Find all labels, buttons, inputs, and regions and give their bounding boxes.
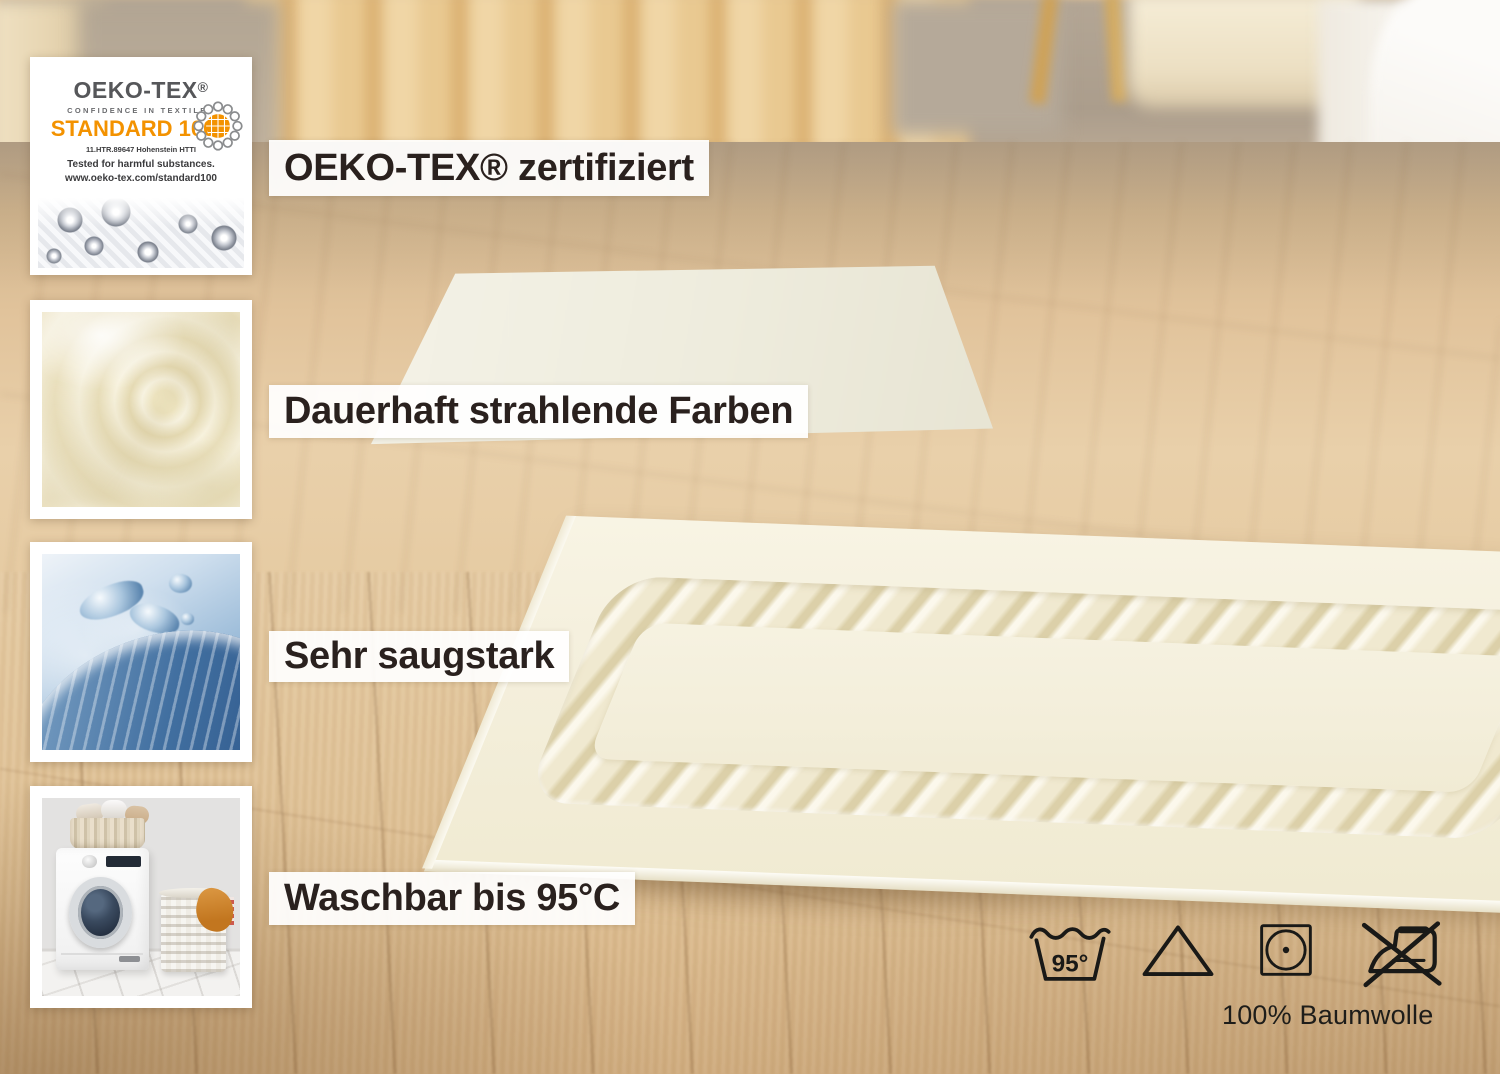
product-feature-image: OEKO-TEX® CONFIDENCE IN TEXTILES STANDAR… bbox=[0, 0, 1500, 1074]
oeko-tex-url: www.oeko-tex.com/standard100 bbox=[30, 173, 252, 184]
machine-vent bbox=[119, 956, 139, 962]
bleach-triangle-icon bbox=[1139, 922, 1217, 978]
feature-label-colors: Dauerhaft strahlende Farben bbox=[269, 385, 808, 438]
terry-fabric-photo bbox=[42, 312, 240, 507]
foreground-bath-mat bbox=[433, 516, 1500, 907]
wash-95-icon: 95° bbox=[1028, 916, 1112, 988]
wash-temperature: 95° bbox=[1052, 950, 1089, 977]
fabric-weave-photo bbox=[38, 198, 244, 268]
machine-knob bbox=[82, 855, 97, 869]
feature-card-certificate: OEKO-TEX® CONFIDENCE IN TEXTILES STANDAR… bbox=[30, 57, 252, 275]
machine-door bbox=[69, 877, 132, 948]
water-splash-photo bbox=[42, 554, 240, 750]
feature-label-absorbent: Sehr saugstark bbox=[269, 631, 569, 682]
feature-card-water bbox=[30, 542, 252, 762]
oeko-tex-license-number: 11.HTR.89647 Hohenstein HTTI bbox=[30, 145, 252, 154]
oeko-tex-tested-line: Tested for harmful substances. bbox=[30, 159, 252, 170]
feature-card-fabric bbox=[30, 300, 252, 519]
wicker-basket bbox=[70, 818, 145, 850]
feature-label-washable: Waschbar bis 95°C bbox=[269, 872, 635, 925]
water-droplet bbox=[181, 613, 195, 625]
water-droplet bbox=[169, 574, 193, 594]
washing-machine-photo bbox=[42, 798, 240, 996]
material-label: 100% Baumwolle bbox=[1222, 1000, 1433, 1031]
washing-machine bbox=[56, 848, 149, 971]
do-not-iron-icon bbox=[1358, 916, 1444, 988]
rolled-towel bbox=[101, 800, 127, 820]
feature-card-washing bbox=[30, 786, 252, 1008]
water-wave bbox=[42, 607, 240, 750]
machine-display bbox=[106, 856, 141, 867]
feature-label-oeko-tex: OEKO-TEX® zertifiziert bbox=[269, 140, 709, 196]
registered-mark: ® bbox=[198, 79, 209, 95]
tumble-dry-icon bbox=[1257, 921, 1315, 977]
